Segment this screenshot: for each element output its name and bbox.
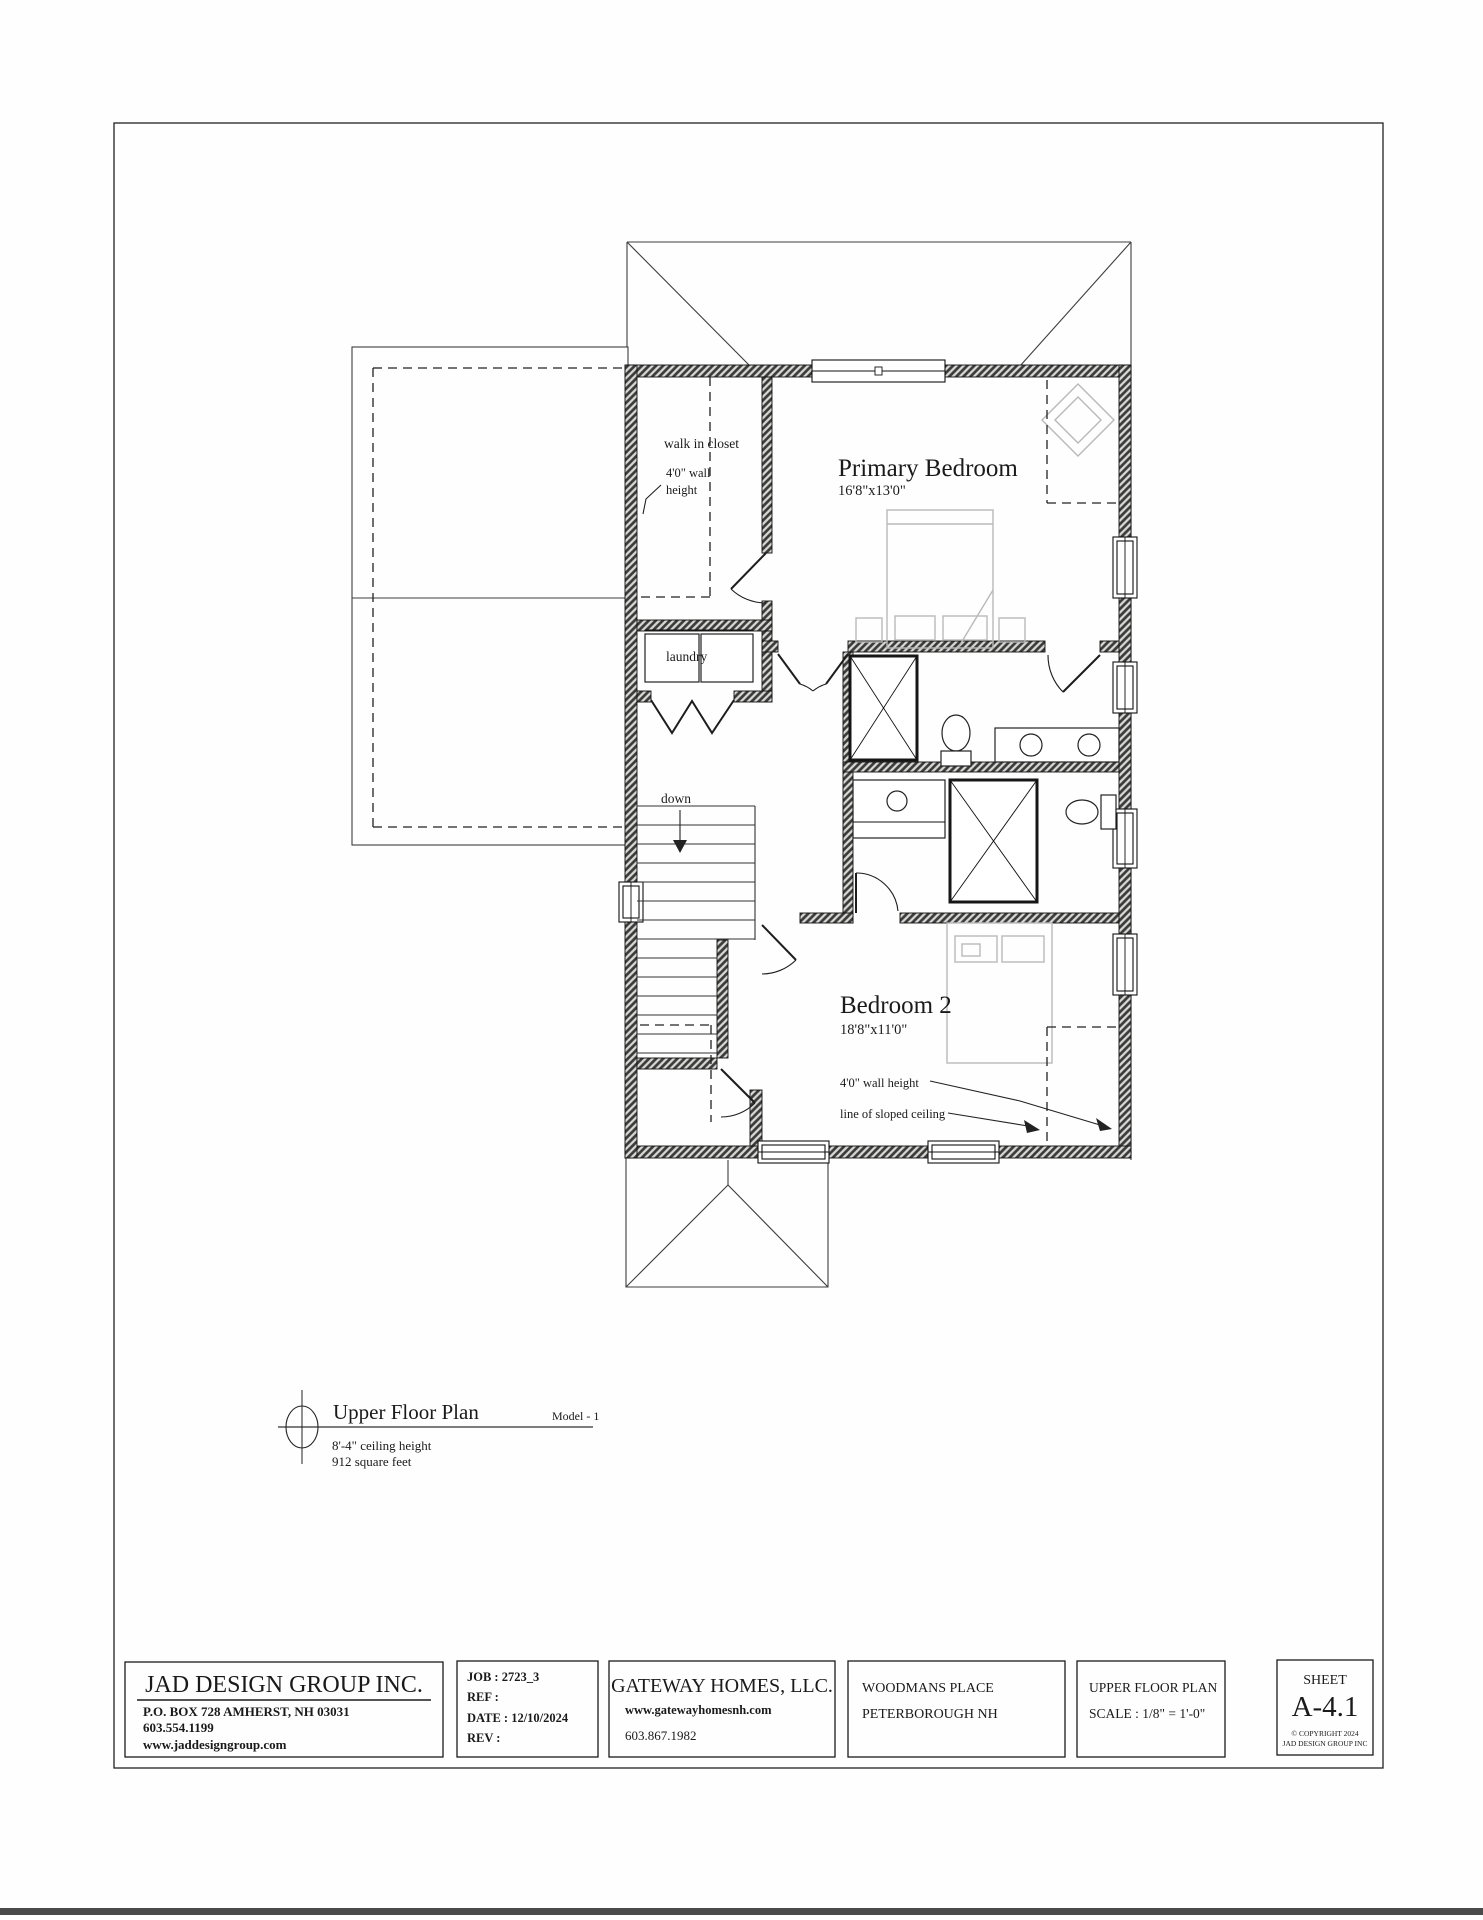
designer-website: www.jaddesigngroup.com [143,1737,287,1752]
copyright-line2: JAD DESIGN GROUP INC [1283,1739,1368,1748]
label-closet-wall-height-2: height [666,483,698,497]
sheet-scale: SCALE : 1/8" = 1'-0" [1089,1706,1205,1721]
toilet-primary [941,715,971,766]
bed-primary [856,510,1025,648]
label-sloped-ceiling: line of sloped ceiling [840,1107,946,1121]
label-bedroom2-wall-height: 4'0" wall height [840,1076,919,1090]
label-closet-wall-height: 4'0" wall [666,466,711,480]
designer-phone: 603.554.1199 [143,1720,214,1735]
label-bedroom2-dims: 18'8"x11'0" [840,1022,907,1038]
plan-title-model: Model - 1 [552,1409,599,1423]
plan-title-area: 912 square feet [332,1454,412,1469]
laundry-bifold-doors [651,700,734,733]
primary-suite-double-door [778,654,848,691]
drawing-sheet: walk in closet 4'0" wall height laundry … [0,0,1483,1920]
bed-bedroom2 [947,923,1052,1063]
sheet-title: UPPER FLOOR PLAN [1089,1680,1218,1695]
sheet-number-box: SHEET A-4.1 © COPYRIGHT 2024 JAD DESIGN … [1277,1660,1373,1755]
builder-name: GATEWAY HOMES, LLC. [611,1675,833,1697]
window-bottom-1 [758,1141,829,1163]
window-top [812,360,945,382]
closet-door-swing [731,553,766,603]
job-date: DATE : 12/10/2024 [467,1711,569,1725]
label-bedroom2: Bedroom 2 [840,992,952,1019]
vanity-primary [995,728,1119,762]
project-name: WOODMANS PLACE [862,1681,994,1696]
project-box: WOODMANS PLACE PETERBOROUGH NH [848,1661,1065,1757]
job-rev: REV : [467,1731,500,1745]
designer-address: P.O. BOX 728 AMHERST, NH 03031 [143,1704,350,1719]
copyright-line1: © COPYRIGHT 2024 [1291,1729,1358,1738]
title-block: JAD DESIGN GROUP INC. P.O. BOX 728 AMHER… [125,1660,1373,1757]
project-location: PETERBOROUGH NH [862,1707,998,1722]
vanity-bath2 [853,780,945,838]
label-walk-in-closet: walk in closet [664,436,739,451]
stairs [637,806,755,1122]
scan-edge-line [0,1908,1483,1915]
job-number: JOB : 2723_3 [467,1670,539,1684]
side-roof-extension [352,347,628,845]
job-box: JOB : 2723_3 REF : DATE : 12/10/2024 REV… [457,1661,598,1757]
window-right-4 [1113,934,1137,995]
builder-box: GATEWAY HOMES, LLC. www.gatewayhomesnh.c… [609,1661,835,1757]
shower-bath2 [950,780,1037,902]
label-primary-bedroom-dims: 16'8"x13'0" [838,483,906,499]
label-primary-bedroom: Primary Bedroom [838,455,1018,482]
window-left [619,882,643,922]
designer-box: JAD DESIGN GROUP INC. P.O. BOX 728 AMHER… [125,1662,443,1757]
plan-title-group: Upper Floor Plan Model - 1 8'-4" ceiling… [278,1390,599,1469]
builder-website: www.gatewayhomesnh.com [625,1703,772,1717]
corner-chair-diamond [1042,384,1114,456]
plan-title: Upper Floor Plan [333,1400,479,1424]
down-arrow [673,810,687,853]
window-right-1 [1113,537,1137,598]
label-down: down [661,791,691,806]
job-ref: REF : [467,1690,499,1704]
primary-bath-door-swing [1048,655,1100,692]
toilet-bath2 [1066,795,1116,829]
window-bottom-2 [928,1141,999,1163]
window-right-2 [1113,662,1137,713]
label-laundry: laundry [666,649,707,664]
bath2-door-swing [856,873,898,913]
builder-phone: 603.867.1982 [625,1728,697,1743]
plan-title-ceiling: 8'-4" ceiling height [332,1438,432,1453]
sheet-label: SHEET [1303,1673,1347,1688]
bedroom2-door-swing [762,925,796,974]
designer-name: JAD DESIGN GROUP INC. [145,1672,423,1698]
shower-primary [850,656,917,760]
floor-plan-svg: walk in closet 4'0" wall height laundry … [0,0,1483,1920]
sheet-number: A-4.1 [1292,1691,1359,1723]
sheet-title-box: UPPER FLOOR PLAN SCALE : 1/8" = 1'-0" [1077,1661,1225,1757]
